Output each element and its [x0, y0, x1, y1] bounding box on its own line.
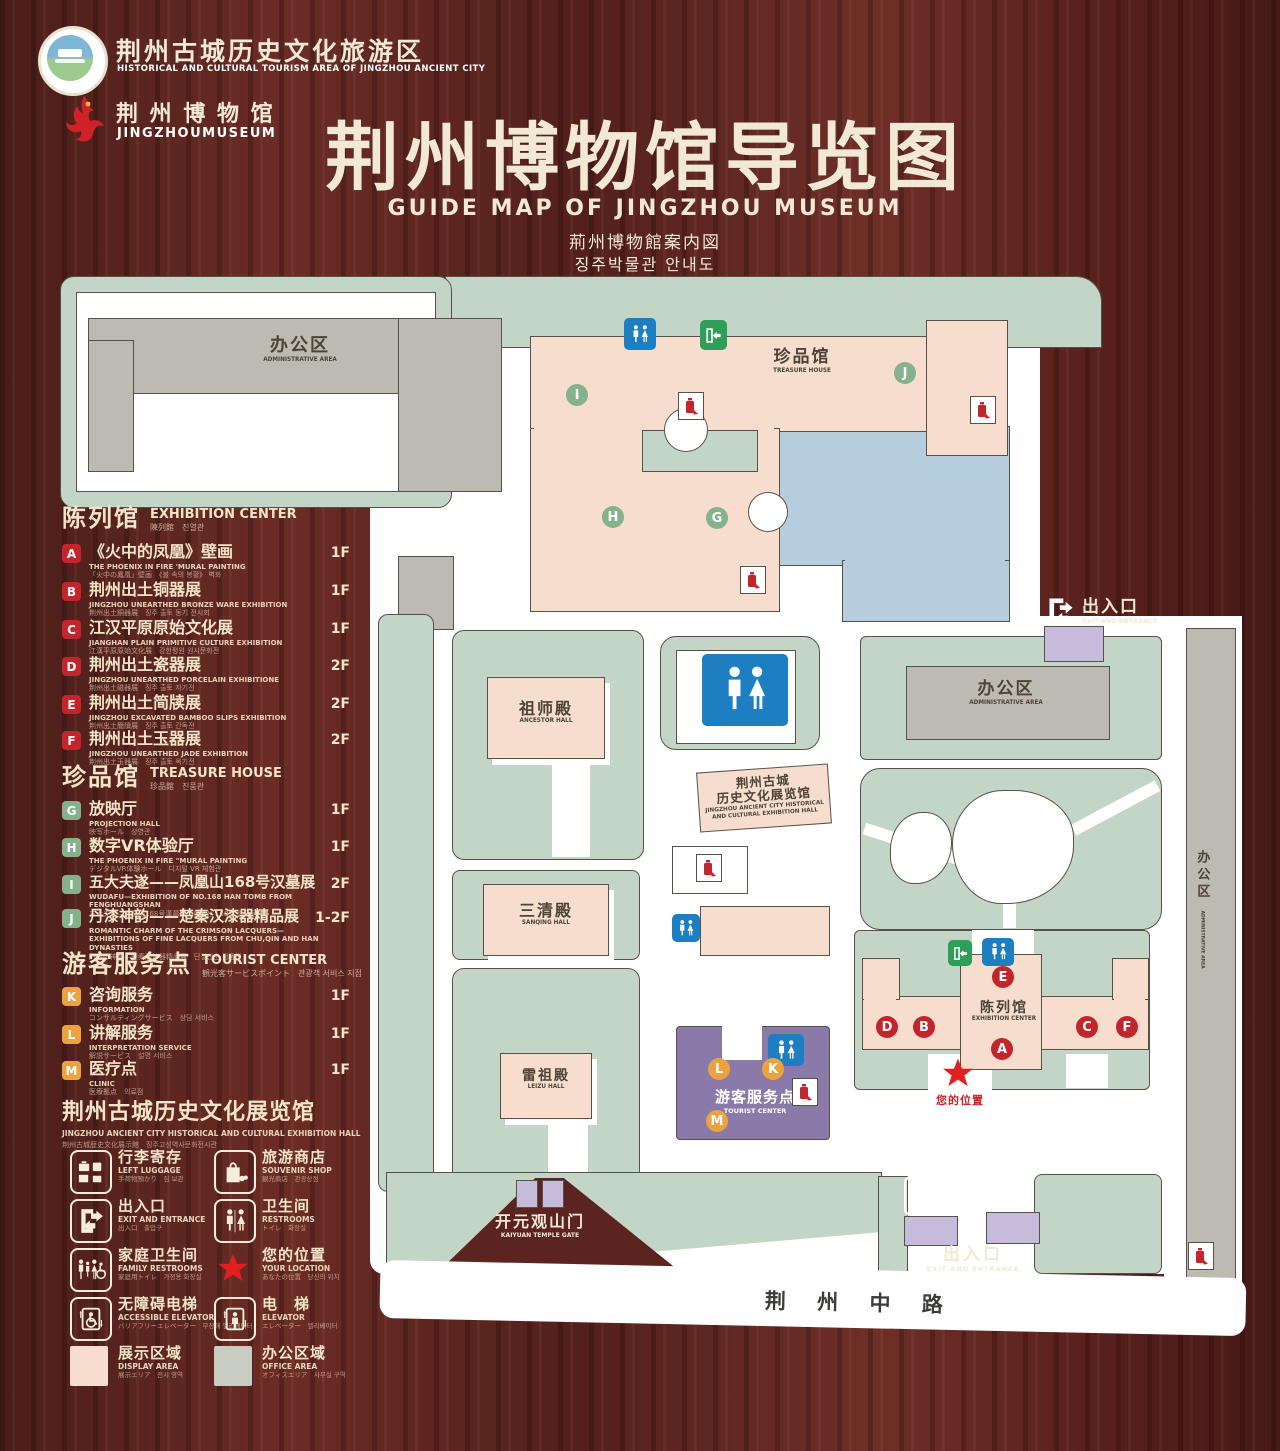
label-road: 荆 州 中 路 — [730, 1284, 991, 1319]
legend-accessible-elevator: 无障碍电梯ACCESSIBLE ELEVATORバリアフリーエレベーター 무장애… — [70, 1297, 220, 1343]
sidebar-item-M: M 1F 医疗点CLINIC医療拠点 의료점 — [62, 1060, 356, 1097]
tourism-area-logo-text-en: HISTORICAL AND CULTURAL TOURISM AREA OF … — [117, 64, 485, 74]
section-header-treasure: 珍品馆 TREASURE HOUSE珍品館 진품관 — [62, 765, 362, 792]
exit-entrance-icon — [70, 1199, 112, 1243]
poster-subtitle-ja: 荊州博物館案内図 — [295, 228, 995, 253]
fire-extinguisher-icon-3 — [740, 566, 766, 594]
lawn-south-east — [1034, 1174, 1162, 1274]
exit-sign-icon-exhibition — [948, 940, 972, 966]
sidebar-item-E: E 2F 荆州出土简牍展JINGZHOU EXCAVATED BAMBOO SL… — [62, 694, 356, 731]
sidebar-item-A: A 1F 《火中的凤凰》壁画THE PHOENIX IN FIRE 'MURAL… — [62, 543, 356, 580]
sidebar-item-L: L 1F 讲解服务INTERPRETATION SERVICE解説サービス 설명… — [62, 1024, 356, 1061]
museum-guide-map-poster: 荆州古城历史文化旅游区 HISTORICAL AND CULTURAL TOUR… — [0, 0, 1280, 1451]
museum-logo-phoenix-icon — [58, 92, 110, 144]
building-admin-nw-wing — [88, 340, 134, 472]
legend-family-restrooms: 家庭卫生间FAMILY RESTROOMS家庭用トイレ 가정용 화장실 — [70, 1248, 220, 1294]
label-exhibition-center: 陈列馆 EXHIBITION CENTER — [954, 1000, 1054, 1023]
path-corridor-1 — [552, 757, 590, 857]
sidebar-item-K: K 1F 咨询服务INFORMATIONコンサルティングサービス 상담 서비스 — [62, 986, 356, 1023]
hall-note-zh: 荆州古城历史文化展览馆 — [62, 1094, 372, 1126]
item-floor-G: 1F — [331, 802, 350, 818]
legend-office-area: 办公区域OFFICE AREAオフィスエリア 사무실 구역 — [214, 1346, 364, 1392]
legend-elevator: 电 梯ELEVATORエレベーター 엘리베이터 — [214, 1297, 364, 1343]
legend-souvenir-shop: 旅游商店SOUVENIR SHOP観光商店 관광상점 — [214, 1150, 364, 1196]
hall-note-en: JINGZHOU ANCIENT CITY HISTORICAL AND CUL… — [62, 1129, 372, 1138]
sidebar-item-H: H 1F 数字VR体验厅THE PHOENIX IN FIRE "MURAL P… — [62, 837, 356, 874]
sidebar-item-G: G 1F 放映厅PROJECTION HALL映写ホール 상영관 — [62, 800, 356, 837]
section-header-tourist: 游客服务点 TOURIST CENTER観光客サービスポイント 관광객 서비스 … — [62, 952, 362, 979]
label-kaiyuan-gate: 开元观山门 KAIYUAN TEMPLE GATE — [460, 1208, 620, 1239]
label-your-location: 您的位置 — [912, 1092, 1008, 1108]
lake-edge-arc — [748, 492, 788, 532]
gate-pier-east — [542, 1180, 564, 1208]
building-treasure-top — [530, 336, 932, 432]
item-badge-K: K — [62, 987, 81, 1006]
label-admin-nw: 办公区 ADMINISTRATIVE AREA — [210, 336, 390, 364]
item-badge-I: I — [62, 875, 81, 894]
map-badge-B: B — [913, 1016, 935, 1038]
office-area-swatch — [214, 1346, 252, 1386]
sidebar-item-D: D 2F 荆州出土瓷器展JINGZHOU UNEARTHED PORCELAIN… — [62, 656, 356, 693]
building-admin-nw-east-wing — [398, 318, 502, 492]
section-header-exhibition: 陈列馆 EXHIBITION CENTER陳列館 진열관 — [62, 506, 362, 533]
gate-building-east — [1044, 626, 1104, 662]
building-small-pink — [700, 906, 830, 956]
map-badge-M: M — [706, 1110, 728, 1132]
restrooms-icon — [214, 1199, 256, 1243]
label-exit-south: 出入口 EXIT AND ENTRANCE — [908, 1240, 1038, 1273]
map-badge-H: H — [602, 506, 624, 528]
label-exit-east: 出入口 EXIT AND ENTRANCE — [1082, 592, 1222, 625]
item-floor-F: 2F — [331, 732, 350, 748]
exhibition-seam-3 — [1114, 994, 1145, 1000]
item-floor-D: 2F — [331, 658, 350, 674]
item-badge-L: L — [62, 1025, 81, 1044]
gate-pier-west — [516, 1180, 538, 1208]
item-floor-H: 1F — [331, 839, 350, 855]
map-badge-E: E — [992, 966, 1014, 988]
sidebar-item-C: C 1F 江汉平原原始文化展JIANGHAN PLAIN PRIMITIVE C… — [62, 619, 356, 656]
item-badge-D: D — [62, 657, 81, 676]
item-floor-A: 1F — [331, 545, 350, 561]
fire-extinguisher-icon-2 — [970, 396, 996, 424]
tourist-center-notch — [722, 1026, 762, 1060]
building-treasure-right — [926, 320, 1008, 456]
elevator-icon-map — [956, 1198, 988, 1230]
legend-your-location: 您的位置YOUR LOCATIONあなたの位置 당신의 위치 — [214, 1248, 364, 1294]
lawn-west-strip — [378, 614, 434, 1192]
item-floor-J: 1-2F — [315, 910, 350, 926]
fire-extinguisher-icon-5 — [792, 1078, 818, 1106]
accessible-elevator-icon — [70, 1297, 112, 1341]
your-location-icon — [214, 1248, 252, 1288]
item-floor-C: 1F — [331, 621, 350, 637]
building-sanqing-hall: 三清殿 SANQING HALL — [483, 884, 609, 956]
restroom-icon-small — [672, 914, 700, 942]
item-floor-B: 1F — [331, 583, 350, 599]
map-badge-I: I — [566, 384, 588, 406]
fire-extinguisher-icon-6 — [1188, 1242, 1214, 1270]
poster-subtitle-ko: 징주박물관 안내도 — [295, 251, 995, 275]
restroom-icon-exhibition — [982, 938, 1014, 966]
item-badge-J: J — [62, 909, 81, 928]
map-badge-C: C — [1076, 1016, 1098, 1038]
item-badge-E: E — [62, 695, 81, 714]
sidebar-item-F: F 2F 荆州出土玉器展JINGZHOU UNEARTHED JADE EXHI… — [62, 730, 356, 767]
elevator-icon — [214, 1297, 256, 1341]
map-badge-K: K — [762, 1058, 784, 1080]
left-luggage-icon — [70, 1150, 112, 1194]
label-ancestor-hall: 祖师殿 ANCESTOR HALL — [488, 700, 604, 725]
label-leizu-hall: 雷祖殿 LEIZU HALL — [501, 1068, 591, 1091]
lake-seam — [845, 556, 1005, 566]
exhibition-seam-2 — [864, 994, 896, 1000]
item-floor-I: 2F — [331, 876, 350, 892]
display-area-swatch — [70, 1346, 108, 1386]
label-treasure-house: 珍品馆 TREASURE HOUSE — [742, 348, 862, 374]
museum-logo-text-en: JINGZHOUMUSEUM — [117, 126, 276, 141]
item-badge-H: H — [62, 838, 81, 857]
souvenir-shop-icon — [214, 1150, 256, 1194]
item-badge-F: F — [62, 731, 81, 750]
map-badge-L: L — [708, 1058, 730, 1080]
restroom-icon-north — [624, 318, 656, 350]
item-badge-G: G — [62, 801, 81, 820]
left-luggage-icon-map — [904, 1176, 946, 1216]
tourism-area-logo — [38, 26, 108, 96]
building-ancestor-hall: 祖师殿 ANCESTOR HALL — [487, 677, 605, 759]
family-restrooms-icon — [70, 1248, 112, 1292]
building-history-hall: 荆州古城 历史文化展览馆 JINGZHOU ANCIENT CITY HISTO… — [696, 763, 832, 832]
restroom-icon — [702, 654, 788, 726]
tourism-area-logo-text-zh: 荆州古城历史文化旅游区 — [116, 32, 424, 68]
item-floor-K: 1F — [331, 988, 350, 1004]
your-location-star-icon — [942, 1058, 974, 1088]
poster-subtitle-en: GUIDE MAP OF JINGZHOU MUSEUM — [295, 196, 995, 221]
map-badge-F: F — [1116, 1016, 1138, 1038]
map-badge-J: J — [894, 362, 916, 384]
sidebar-item-B: B 1F 荆州出土铜器展JINGZHOU UNEARTHED BRONZE WA… — [62, 581, 356, 618]
legend-restrooms: 卫生间RESTROOMSトイレ 화장실 — [214, 1199, 364, 1245]
building-leizu-hall: 雷祖殿 LEIZU HALL — [500, 1053, 592, 1119]
lake-lower — [842, 560, 1010, 622]
exhibition-notch-right — [1066, 1054, 1108, 1088]
label-history-hall: 荆州古城 历史文化展览馆 JINGZHOU ANCIENT CITY HISTO… — [698, 771, 831, 822]
legend-exit-entrance: 出入口EXIT AND ENTRANCE出入口 출입구 — [70, 1199, 220, 1245]
museum-logo-text-zh: 荆 州 博 物 馆 — [116, 96, 275, 128]
item-floor-E: 2F — [331, 696, 350, 712]
legend-display-area: 展示区域DISPLAY AREA展示エリア 전시 영역 — [70, 1346, 220, 1392]
treasure-seam-2 — [927, 338, 933, 428]
poster-title: 荆州博物馆导览图 — [295, 98, 995, 205]
item-badge-A: A — [62, 544, 81, 563]
map-badge-G: G — [706, 507, 728, 529]
item-badge-B: B — [62, 582, 81, 601]
item-badge-C: C — [62, 620, 81, 639]
item-floor-M: 1F — [331, 1062, 350, 1078]
hall-note: 荆州古城历史文化展览馆 JINGZHOU ANCIENT CITY HISTOR… — [62, 1094, 372, 1150]
item-floor-L: 1F — [331, 1026, 350, 1042]
map-badge-A: A — [991, 1038, 1013, 1060]
exit-door-icon-east — [1046, 596, 1076, 624]
label-admin-strip: 办公区 ADMINISTRATIVE AREA — [1192, 850, 1210, 969]
legend-left-luggage: 行李寄存LEFT LUGGAGE手荷物預かり 짐 보관 — [70, 1150, 220, 1196]
fire-extinguisher-icon-4 — [696, 854, 722, 882]
map-badge-D: D — [876, 1016, 898, 1038]
label-sanqing-hall: 三清殿 SANQING HALL — [484, 902, 608, 927]
item-badge-M: M — [62, 1061, 81, 1080]
exit-sign-icon-north — [700, 320, 727, 350]
fire-extinguisher-icon-1 — [678, 392, 704, 420]
label-admin-east: 办公区 ADMINISTRATIVE AREA — [916, 680, 1096, 706]
